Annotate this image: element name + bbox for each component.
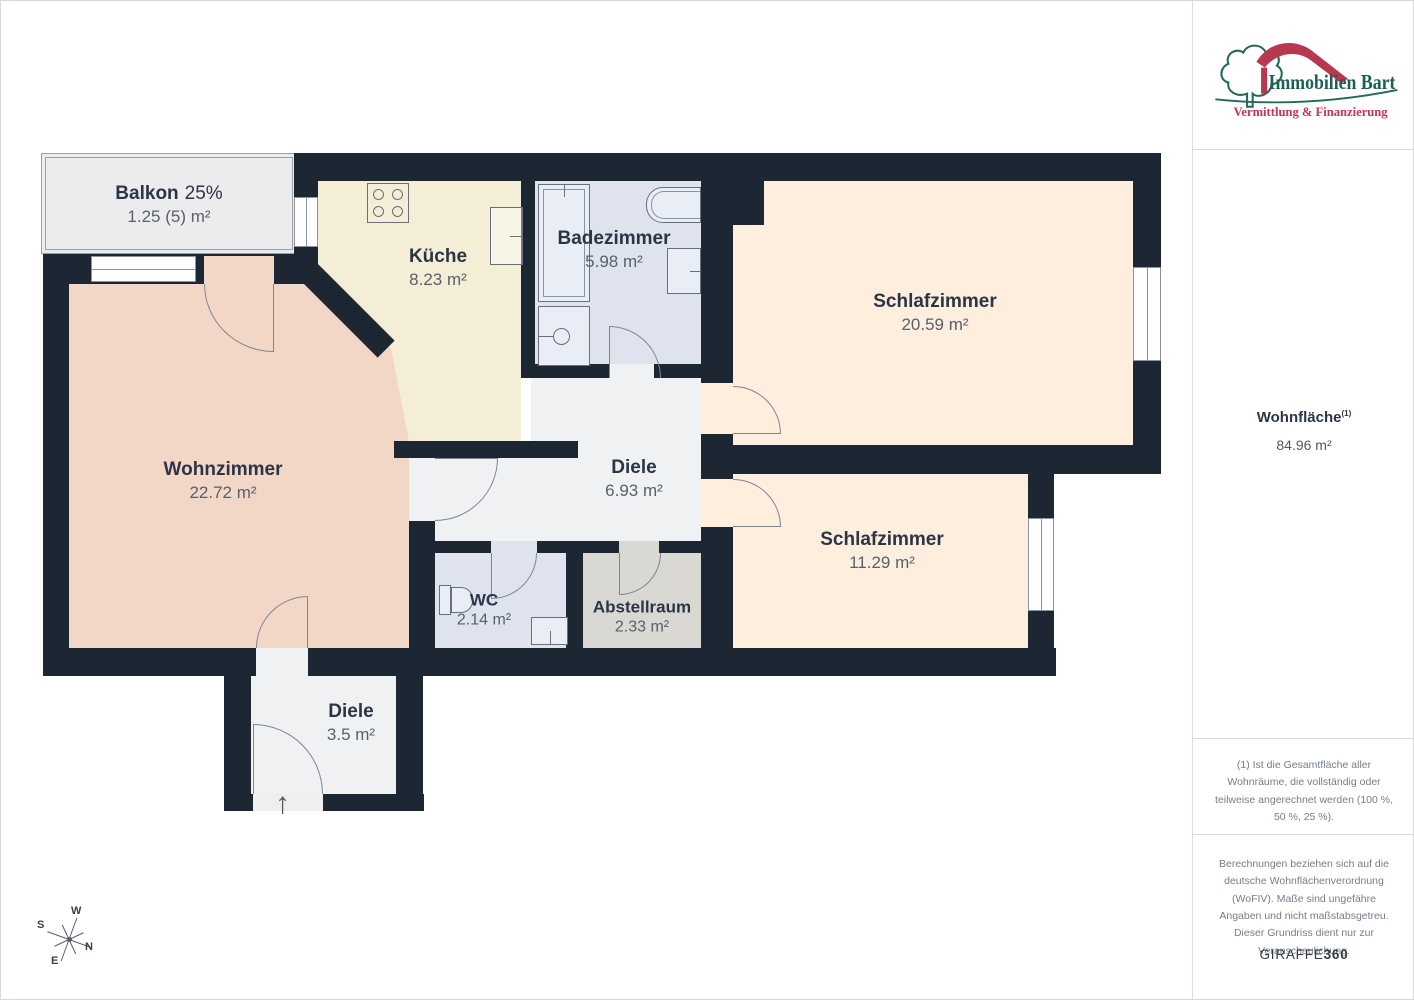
label-diele1: Diele 6.93 m²	[605, 456, 663, 502]
wc-sink-icon	[531, 617, 568, 645]
label-kueche: Küche 8.23 m²	[409, 245, 467, 291]
wall-diele2-left	[224, 674, 251, 808]
footnote-2: Berechnungen beziehen sich auf die deuts…	[1193, 856, 1414, 960]
door-gap-abstellraum	[619, 541, 659, 553]
company-logo: Immobilien Bart Vermittlung & Finanzieru…	[1206, 23, 1402, 132]
label-abstellraum: Abstellraum 2.33 m²	[593, 597, 691, 638]
window-schlafzimmer2	[1028, 518, 1054, 611]
wall-kitchen-right	[521, 181, 535, 378]
label-schlafzimmer1: Schlafzimmer 20.59 m²	[873, 290, 997, 336]
kitchen-counter-icon	[490, 207, 523, 265]
label-badezimmer: Badezimmer 5.98 m²	[558, 227, 671, 273]
wall-left	[43, 256, 69, 676]
stove-icon	[367, 183, 409, 223]
footnote-ref: (1)	[1341, 409, 1351, 418]
door-gap-schlafzimmer1	[701, 383, 733, 434]
compass-w: W	[71, 905, 81, 917]
logo-tagline: Vermittlung & Finanzierung	[1233, 105, 1388, 119]
footnote-1: (1) Ist die Gesamtfläche aller Wohnräume…	[1193, 757, 1414, 826]
window-schlafzimmer1	[1133, 267, 1161, 361]
compass-icon: W S N E	[27, 897, 111, 981]
compass-n: N	[85, 941, 93, 953]
logo-brand-text: Immobilien Bart	[1269, 70, 1397, 94]
label-schlafzimmer2: Schlafzimmer 11.29 m²	[820, 528, 944, 574]
giraffe360-brand: GIRAFFE360	[1193, 947, 1414, 962]
sidebar: Immobilien Bart Vermittlung & Finanzieru…	[1192, 1, 1414, 1000]
window-wohnzimmer	[91, 256, 196, 282]
washbasin2-icon	[667, 248, 701, 294]
door-gap-wohnzimmer-diele	[409, 458, 435, 521]
label-wohnzimmer: Wohnzimmer 22.72 m²	[164, 458, 283, 504]
door-gap-wc	[491, 541, 537, 553]
label-diele2: Diele 3.5 m²	[327, 700, 375, 746]
wall-wc-abstell-sep	[566, 553, 583, 648]
compass-s: S	[37, 919, 44, 931]
wall-diele2-right	[396, 676, 423, 808]
label-wc: WC 2.14 m²	[457, 590, 511, 631]
logo-chimney-icon	[1261, 68, 1267, 94]
door-gap-wohnzimmer-diele2	[256, 648, 308, 676]
floorplan-page: ↑ Balkon25% 1.25 (5) m² Küche 8.23 m² Ba…	[0, 0, 1414, 1000]
total-area-label: Wohnfläche(1)	[1193, 409, 1414, 426]
total-area-block: Wohnfläche(1) 84.96 m²	[1193, 409, 1414, 453]
toilet-tank-icon	[439, 585, 451, 615]
immobilien-bart-logo-icon: Immobilien Bart Vermittlung & Finanzieru…	[1206, 23, 1402, 127]
washbasin-icon	[538, 306, 590, 366]
door-gap-balcony	[204, 256, 274, 284]
wall-sz-split	[729, 445, 1161, 474]
wall-sz1-stub	[733, 181, 764, 225]
floorplan-canvas: ↑ Balkon25% 1.25 (5) m² Küche 8.23 m² Ba…	[1, 1, 1192, 1000]
bathtub-icon	[646, 187, 701, 223]
window-balcony-side	[294, 197, 318, 247]
entrance-arrow-icon: ↑	[275, 789, 290, 819]
wall-top	[294, 153, 1161, 181]
door-gap-schlafzimmer2	[701, 479, 733, 527]
compass-e: E	[51, 955, 58, 967]
label-balkon: Balkon25% 1.25 (5) m²	[115, 182, 222, 228]
wall-bottom	[43, 648, 1056, 676]
total-area-value: 84.96 m²	[1193, 437, 1414, 453]
